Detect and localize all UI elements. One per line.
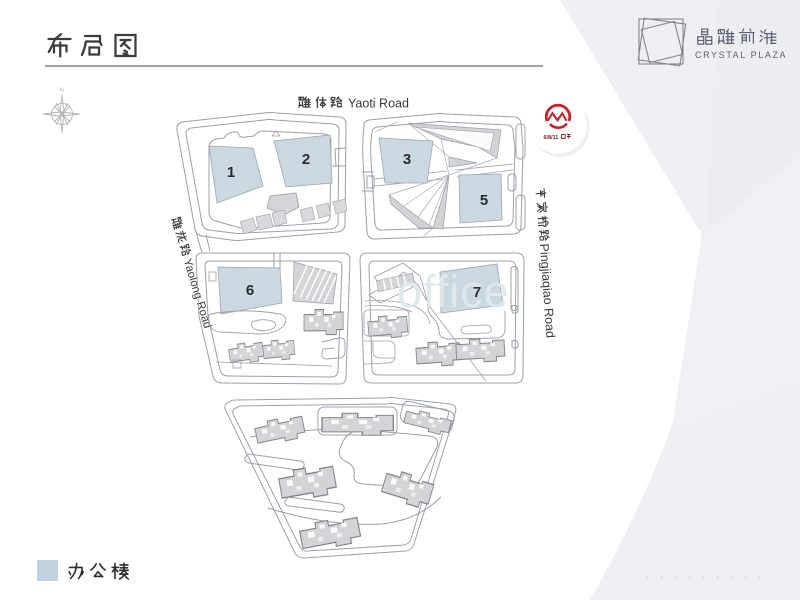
svg-text:office: office xyxy=(397,266,510,317)
svg-text:N: N xyxy=(60,88,64,94)
svg-text:6/8/11: 6/8/11 xyxy=(544,135,559,141)
svg-text:5: 5 xyxy=(480,192,488,209)
svg-text:3: 3 xyxy=(403,151,411,168)
svg-text:Yaoti Road: Yaoti Road xyxy=(348,97,409,111)
svg-text:6: 6 xyxy=(246,282,254,299)
svg-text:7: 7 xyxy=(473,284,481,301)
svg-text:1: 1 xyxy=(227,164,235,181)
svg-text:2: 2 xyxy=(302,151,310,168)
svg-text:CRYSTAL PLAZA: CRYSTAL PLAZA xyxy=(695,50,787,60)
